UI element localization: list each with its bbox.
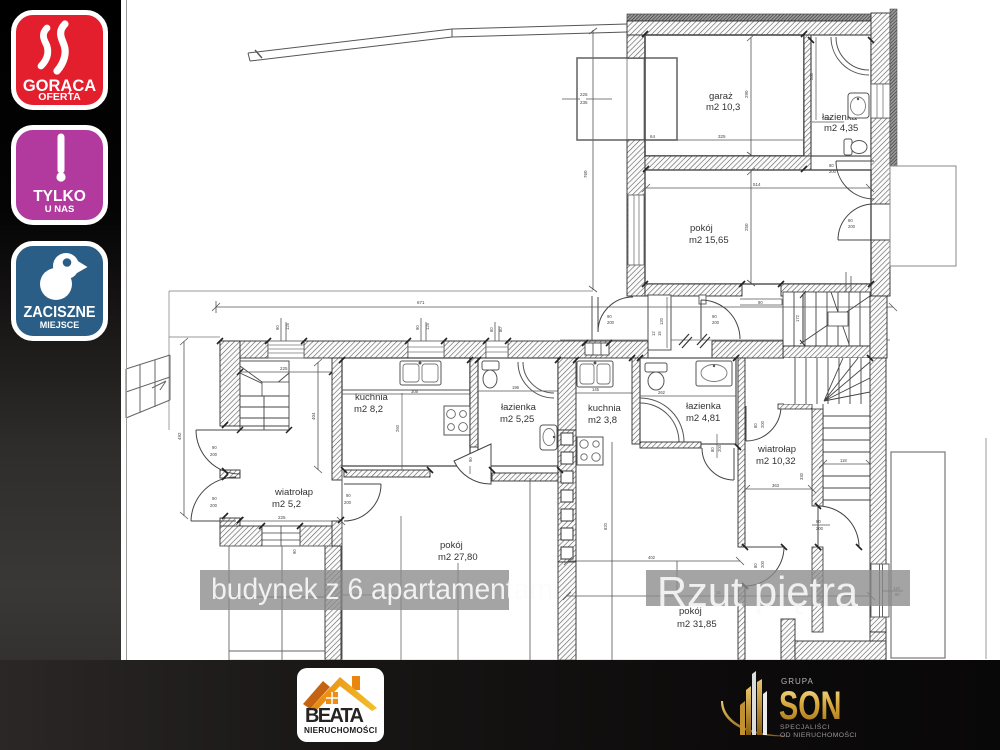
svg-text:m2 5,25: m2 5,25 [500, 414, 534, 425]
svg-text:671: 671 [417, 300, 425, 305]
svg-text:200: 200 [848, 224, 856, 229]
svg-text:wiatrołap: wiatrołap [757, 444, 796, 455]
svg-text:90: 90 [275, 325, 280, 330]
svg-text:260: 260 [395, 424, 400, 432]
svg-text:200: 200 [344, 500, 352, 505]
svg-text:325: 325 [718, 134, 726, 139]
svg-text:64: 64 [650, 134, 656, 139]
svg-text:m2 31,85: m2 31,85 [677, 619, 717, 630]
svg-text:514: 514 [753, 182, 761, 187]
svg-text:90: 90 [712, 314, 717, 319]
svg-text:262: 262 [658, 390, 666, 395]
svg-text:80: 80 [498, 327, 503, 332]
svg-text:90: 90 [607, 314, 612, 319]
svg-text:120: 120 [659, 317, 664, 325]
svg-text:280: 280 [809, 72, 814, 80]
svg-text:80: 80 [489, 327, 494, 332]
svg-text:OD NIERUCHOMOŚCI: OD NIERUCHOMOŚCI [780, 730, 857, 739]
svg-text:m2 15,65: m2 15,65 [689, 235, 729, 246]
svg-text:404: 404 [311, 412, 316, 420]
svg-text:m2 4,81: m2 4,81 [686, 413, 720, 424]
svg-text:garaż: garaż [709, 91, 733, 102]
svg-text:172: 172 [795, 314, 800, 322]
svg-text:90: 90 [758, 300, 763, 305]
svg-text:125: 125 [285, 322, 290, 330]
svg-text:pokój: pokój [440, 540, 463, 551]
svg-text:wiatrołap: wiatrołap [274, 487, 313, 498]
svg-text:118: 118 [840, 458, 847, 463]
svg-text:250: 250 [744, 223, 749, 231]
svg-text:80: 80 [753, 423, 758, 428]
svg-text:80: 80 [848, 218, 853, 223]
svg-text:m2 3,8: m2 3,8 [588, 415, 617, 426]
svg-text:125: 125 [425, 322, 430, 330]
svg-text:330: 330 [799, 472, 804, 480]
svg-text:90: 90 [212, 496, 217, 501]
svg-text:200: 200 [816, 526, 824, 531]
svg-text:153: 153 [824, 116, 832, 121]
svg-text:80: 80 [816, 519, 821, 524]
svg-text:225: 225 [580, 92, 588, 97]
svg-text:290: 290 [744, 90, 749, 98]
svg-text:225: 225 [280, 366, 288, 371]
svg-text:196: 196 [512, 385, 520, 390]
svg-text:235: 235 [580, 100, 588, 105]
svg-text:90: 90 [292, 549, 297, 554]
svg-text:m2 4,35: m2 4,35 [824, 123, 858, 134]
svg-text:492: 492 [177, 432, 182, 440]
svg-text:820: 820 [603, 522, 608, 530]
svg-text:15: 15 [657, 331, 662, 336]
svg-text:BEATA: BEATA [305, 705, 364, 727]
svg-text:90: 90 [212, 445, 217, 450]
svg-text:200: 200 [760, 420, 765, 428]
svg-text:80: 80 [710, 447, 715, 452]
svg-text:łazienka: łazienka [686, 401, 722, 412]
svg-text:200: 200 [712, 320, 720, 325]
svg-text:90: 90 [346, 493, 351, 498]
svg-text:200: 200 [210, 452, 218, 457]
svg-text:pokój: pokój [690, 223, 713, 234]
svg-text:200: 200 [717, 444, 722, 452]
svg-text:SON: SON [779, 683, 841, 728]
svg-text:200: 200 [760, 560, 765, 568]
svg-text:m2 10,32: m2 10,32 [756, 456, 796, 467]
svg-text:308: 308 [411, 389, 419, 394]
svg-text:SPECJALIŚCI: SPECJALIŚCI [780, 722, 830, 731]
svg-text:kuchnia: kuchnia [588, 403, 621, 414]
svg-text:402: 402 [648, 555, 656, 560]
svg-text:łazienka: łazienka [501, 402, 537, 413]
svg-text:145: 145 [592, 387, 600, 392]
svg-text:90: 90 [468, 457, 473, 462]
svg-text:m2 27,80: m2 27,80 [438, 552, 478, 563]
svg-text:m2 5,2: m2 5,2 [272, 499, 301, 510]
svg-text:m2 10,3: m2 10,3 [706, 102, 740, 113]
svg-text:200: 200 [210, 503, 218, 508]
svg-text:80: 80 [829, 163, 834, 168]
svg-text:200: 200 [829, 169, 837, 174]
svg-text:12: 12 [651, 331, 656, 336]
svg-text:90: 90 [415, 325, 420, 330]
svg-text:760: 760 [583, 170, 588, 178]
svg-text:m2 8,2: m2 8,2 [354, 404, 383, 415]
svg-text:225: 225 [278, 515, 286, 520]
svg-text:200: 200 [607, 320, 615, 325]
svg-text:363: 363 [772, 483, 780, 488]
svg-text:NIERUCHOMOŚCI: NIERUCHOMOŚCI [304, 724, 377, 735]
